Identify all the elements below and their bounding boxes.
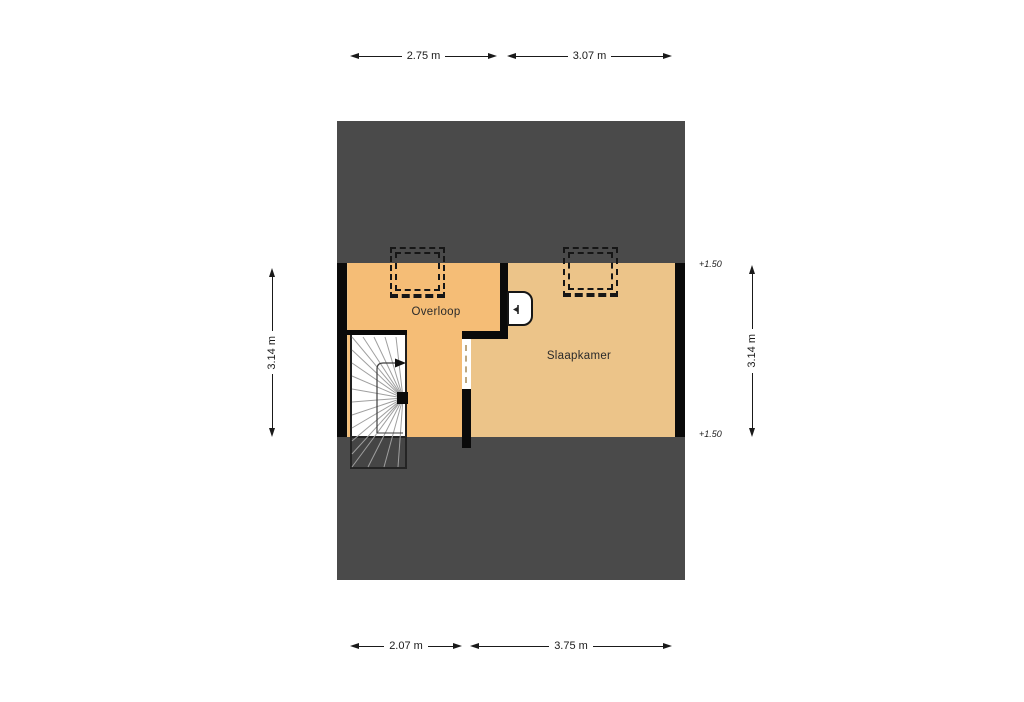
- dimension-bottom-right: 3.75 m: [470, 639, 672, 653]
- room-label-overloop: Overloop: [411, 306, 460, 318]
- floor-plan-page: 2.75 m 3.07 m 3.14 m 3.14 m +1.50 +1.50: [0, 0, 1024, 702]
- dormer-outline-right: [563, 247, 618, 297]
- wall-divider-lower: [462, 389, 471, 448]
- staircase: [346, 330, 410, 470]
- wall-stair-top: [346, 330, 407, 335]
- roof-window-handle-icon: [512, 304, 521, 316]
- dimension-top-left: 2.75 m: [350, 49, 497, 63]
- dimension-label: 3.14 m: [266, 331, 278, 375]
- dormer-outline-left: [390, 247, 445, 298]
- dimension-label: 3.75 m: [549, 640, 593, 652]
- arrow-left-icon: [507, 53, 516, 59]
- roof-window: [507, 291, 533, 326]
- arrow-left-icon: [470, 643, 479, 649]
- arrow-left-icon: [350, 643, 359, 649]
- stair-newel-post: [397, 392, 408, 404]
- arrow-down-icon: [269, 428, 275, 437]
- room-label-slaapkamer: Slaapkamer: [547, 350, 611, 362]
- wall-divider-horizontal: [462, 331, 508, 339]
- dimension-label: 3.14 m: [746, 329, 758, 373]
- level-marker-bottom: +1.50: [699, 429, 722, 439]
- door-opening: [462, 339, 471, 389]
- roof-area: [337, 121, 685, 580]
- arrow-right-icon: [663, 53, 672, 59]
- wall-right: [675, 263, 685, 437]
- dimension-right: 3.14 m: [745, 265, 759, 437]
- arrow-left-icon: [350, 53, 359, 59]
- door-leaf-dashed: [465, 345, 467, 383]
- arrow-right-icon: [488, 53, 497, 59]
- dimension-label: 2.75 m: [402, 50, 446, 62]
- arrow-up-icon: [269, 268, 275, 277]
- arrow-right-icon: [663, 643, 672, 649]
- dimension-top-right: 3.07 m: [507, 49, 672, 63]
- dimension-label: 2.07 m: [384, 640, 428, 652]
- dimension-bottom-left: 2.07 m: [350, 639, 462, 653]
- arrow-up-icon: [749, 265, 755, 274]
- dimension-left: 3.14 m: [265, 268, 279, 437]
- arrow-right-icon: [453, 643, 462, 649]
- arrow-down-icon: [749, 428, 755, 437]
- dimension-label: 3.07 m: [568, 50, 612, 62]
- level-marker-top: +1.50: [699, 259, 722, 269]
